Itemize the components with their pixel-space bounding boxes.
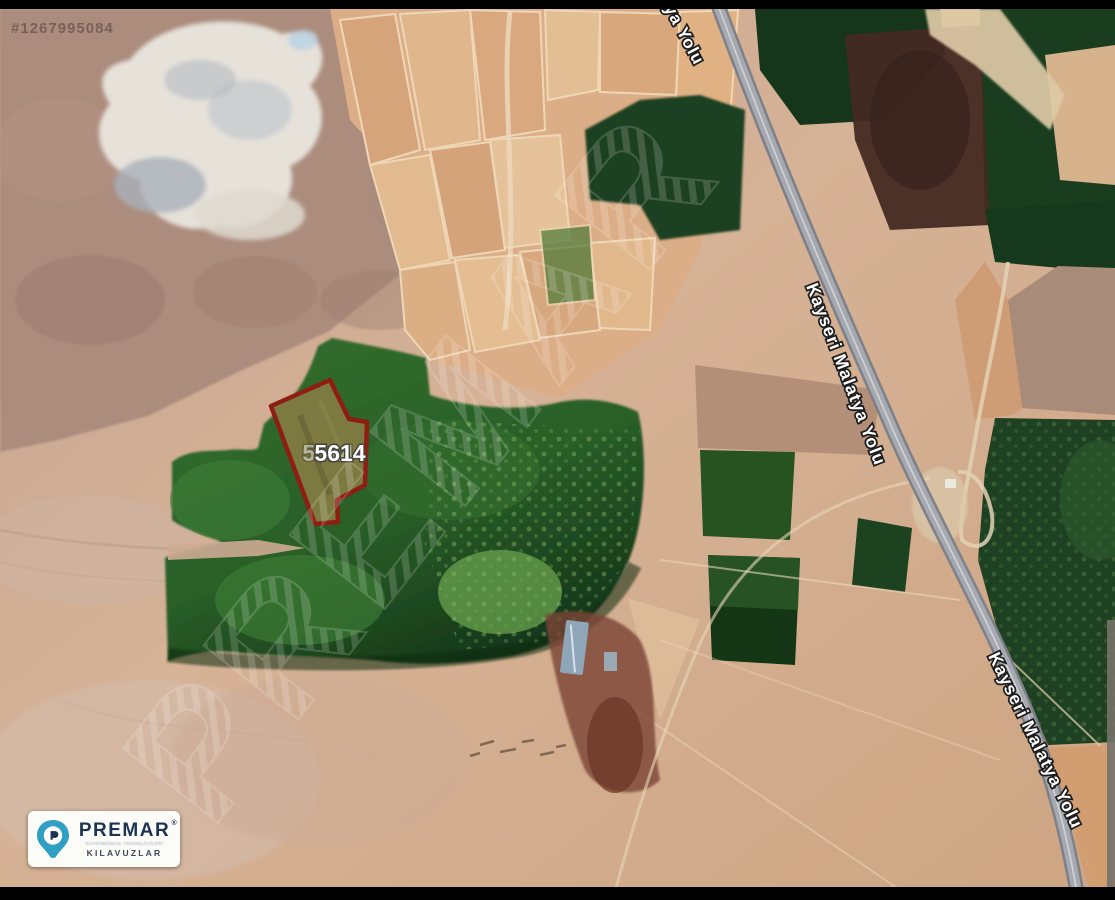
black-bar-top — [0, 0, 1115, 9]
satellite-map: 5614 5614 ya Yolu Kayseri Malatya Yol — [0, 0, 1115, 900]
logo-pin-icon — [36, 819, 70, 859]
listing-id-watermark: #1267995084 — [11, 20, 114, 37]
registered-mark: ® — [172, 820, 179, 827]
premar-logo: PREMAR® GAYRİMENKUL TEKNOLOJİLERİ KILAVU… — [28, 811, 180, 867]
logo-tagline: GAYRİMENKUL TEKNOLOJİLERİ — [85, 842, 163, 847]
logo-brand: PREMAR® — [79, 821, 170, 840]
logo-division: KILAVUZLAR — [87, 849, 163, 858]
building-small — [604, 652, 617, 671]
black-bar-bottom — [0, 887, 1115, 900]
pond-spot — [288, 30, 318, 50]
